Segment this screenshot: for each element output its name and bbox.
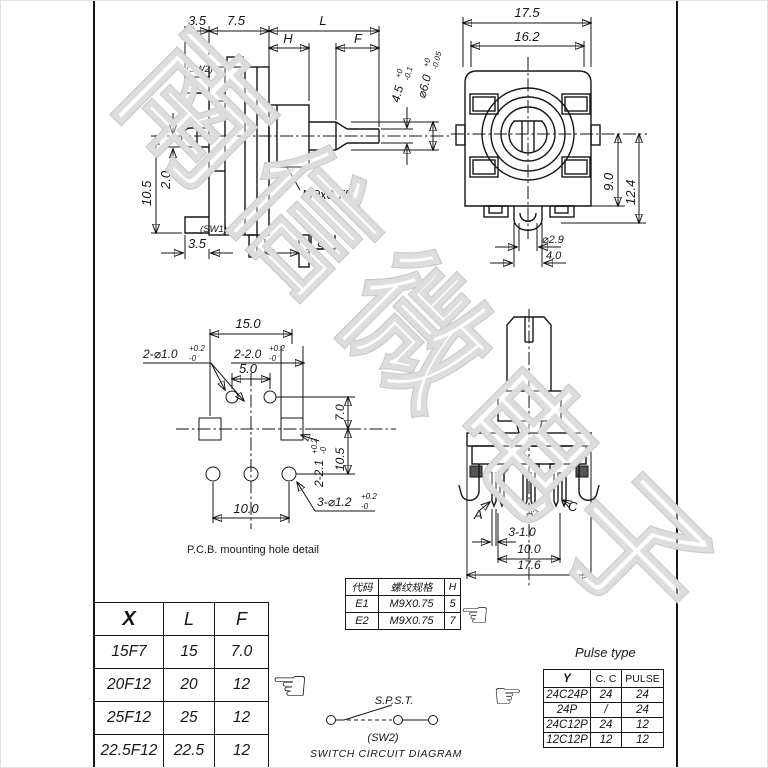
- tol-dn: -0.05: [430, 50, 444, 70]
- cell-pulse: 12: [622, 733, 664, 748]
- col-cc: C. C: [591, 670, 622, 688]
- col-pulse: PULSE: [622, 670, 664, 688]
- table-row: 24C24P 24 24: [544, 688, 664, 703]
- dim-12.4: 12.4: [623, 180, 638, 205]
- cell-cc: 24: [591, 718, 622, 733]
- dim-3-dia1.2: 3-⌀1.2: [317, 495, 352, 509]
- tol-dn: -0.1: [402, 66, 414, 82]
- thread-spec-table: 代码 螺纹规格 H E1 M9X0.75 5 E2 M9X0.75 7: [345, 578, 461, 630]
- col-f: F: [215, 603, 269, 636]
- col-l: L: [164, 603, 215, 636]
- table-header-row: Y C. C PULSE: [544, 670, 664, 688]
- cell-f: 12: [215, 702, 269, 735]
- dim-shaft-dia: ⌀6.0 +0 -0.05: [413, 48, 443, 101]
- cell-l: 15: [164, 636, 215, 669]
- cell-pulse: 24: [622, 688, 664, 703]
- dim-10.5-left: 10.5: [139, 180, 154, 206]
- dim-H: H: [283, 31, 293, 46]
- cell-y: 12C12P: [544, 733, 591, 748]
- cell-code: E2: [346, 613, 379, 630]
- col-h: H: [445, 579, 461, 596]
- pulse-type-title: Pulse type: [575, 645, 636, 660]
- dim-L: L: [319, 13, 326, 28]
- cell-h: 7: [445, 613, 461, 630]
- tol-dn: -0: [189, 354, 197, 363]
- dim-shaft-flat: 4.5 +0 -0.1: [387, 63, 414, 104]
- table-row: 25F12 25 12: [95, 702, 269, 735]
- cell-y: 24C12P: [544, 718, 591, 733]
- pointing-hand-left-icon: ☜: [271, 665, 309, 707]
- dim-6.0: ⌀6.0: [414, 73, 434, 100]
- table-row: 15F7 15 7.0: [95, 636, 269, 669]
- tol-dn: -0: [361, 502, 369, 511]
- col-y: Y: [544, 670, 591, 688]
- table-row: 24C12P 24 12: [544, 718, 664, 733]
- cell-l: 25: [164, 702, 215, 735]
- dim-9.0: 9.0: [601, 172, 616, 191]
- cell-y: 24P: [544, 703, 591, 718]
- terminal-a-label: A: [473, 507, 483, 522]
- table-row: 24P / 24: [544, 703, 664, 718]
- tol-dn: -0: [269, 354, 277, 363]
- table-header-row: 代码 螺纹规格 H: [346, 579, 461, 596]
- pcb-detail-caption: P.C.B. mounting hole detail: [187, 544, 319, 556]
- shaft-length-table: X L F 15F7 15 7.0 20F12 20 12 25F12 25 1…: [94, 602, 269, 768]
- table-header-row: X L F: [95, 603, 269, 636]
- cell-spec: M9X0.75: [379, 596, 445, 613]
- watermark-text: 南信微电子: [89, 5, 752, 668]
- dim-4.5: 4.5: [388, 84, 406, 104]
- table-row: 22.5F12 22.5 12: [95, 735, 269, 768]
- switch-type-label: S.P.S.T.: [375, 695, 414, 707]
- dim-16.2: 16.2: [514, 29, 540, 44]
- dim-2-2.1-group: 2-2.1 +0.2 -0: [310, 438, 328, 488]
- dim-2-2.1: 2-2.1: [312, 460, 326, 488]
- cell-pulse: 12: [622, 718, 664, 733]
- dim-7.0: 7.0: [333, 404, 347, 421]
- tol-up: +0.2: [189, 344, 205, 353]
- cell-f: 12: [215, 669, 269, 702]
- col-x: X: [95, 603, 164, 636]
- datasheet-drawing: 3.5 7.5 L H F 4.5 +0 -0.1 ⌀6.0 +0 -0.05 …: [0, 0, 768, 768]
- col-code: 代码: [346, 579, 379, 596]
- table-row: E2 M9X0.75 7: [346, 613, 461, 630]
- dim-2-2.0: 2-2.0: [233, 347, 262, 361]
- cell-f: 12: [215, 735, 269, 768]
- col-spec: 螺纹规格: [379, 579, 445, 596]
- dim-4.0: 4.0: [546, 250, 562, 262]
- cell-cc: 24: [591, 688, 622, 703]
- cell-x: 22.5F12: [95, 735, 164, 768]
- pointing-hand-left-icon: ☜: [460, 598, 490, 631]
- cell-x: 25F12: [95, 702, 164, 735]
- dim-2.9: ⌀2.9: [542, 234, 564, 246]
- cell-x: 20F12: [95, 669, 164, 702]
- dim-10.5-pcb: 10.5: [333, 447, 347, 471]
- switch-diagram-caption: SWITCH CIRCUIT DIAGRAM: [310, 748, 462, 760]
- cell-spec: M9X0.75: [379, 613, 445, 630]
- cell-cc: /: [591, 703, 622, 718]
- cell-l: 20: [164, 669, 215, 702]
- table-row: 20F12 20 12: [95, 669, 269, 702]
- watermark: 南信微电子: [89, 5, 752, 668]
- dim-17.5: 17.5: [514, 5, 540, 20]
- dim-5.0: 5.0: [239, 361, 258, 376]
- cell-x: 15F7: [95, 636, 164, 669]
- cell-y: 24C24P: [544, 688, 591, 703]
- pointing-hand-right-icon: ☞: [493, 679, 523, 712]
- cell-f: 7.0: [215, 636, 269, 669]
- cell-pulse: 24: [622, 703, 664, 718]
- dim-15.0: 15.0: [235, 316, 261, 331]
- switch-circuit-diagram: S.P.S.T. (SW2) SWITCH CIRCUIT DIAGRAM: [310, 695, 462, 760]
- table-row: E1 M9X0.75 5: [346, 596, 461, 613]
- dim-3.5-bottom: 3.5: [188, 236, 207, 251]
- dim-10.0-pcb: 10.0: [233, 501, 259, 516]
- tol-up: +0.2: [361, 492, 377, 501]
- table-row: 12C12P 12 12: [544, 733, 664, 748]
- switch-sw2-label: (SW2): [367, 732, 399, 744]
- cell-h: 5: [445, 596, 461, 613]
- tol-up: +0.2: [269, 344, 285, 353]
- cell-cc: 12: [591, 733, 622, 748]
- cell-l: 22.5: [164, 735, 215, 768]
- pulse-type-table: Y C. C PULSE 24C24P 24 24 24P / 24 24C12…: [543, 669, 664, 748]
- front-view: 17.5 16.2 9.0 12.4 ⌀2.9 4.0: [451, 5, 647, 267]
- dim-2-dia1.0: 2-⌀1.0: [142, 347, 178, 361]
- tol-dn: -0: [319, 446, 328, 454]
- cell-code: E1: [346, 596, 379, 613]
- dim-F: F: [354, 31, 363, 46]
- dim-7.5: 7.5: [227, 13, 246, 28]
